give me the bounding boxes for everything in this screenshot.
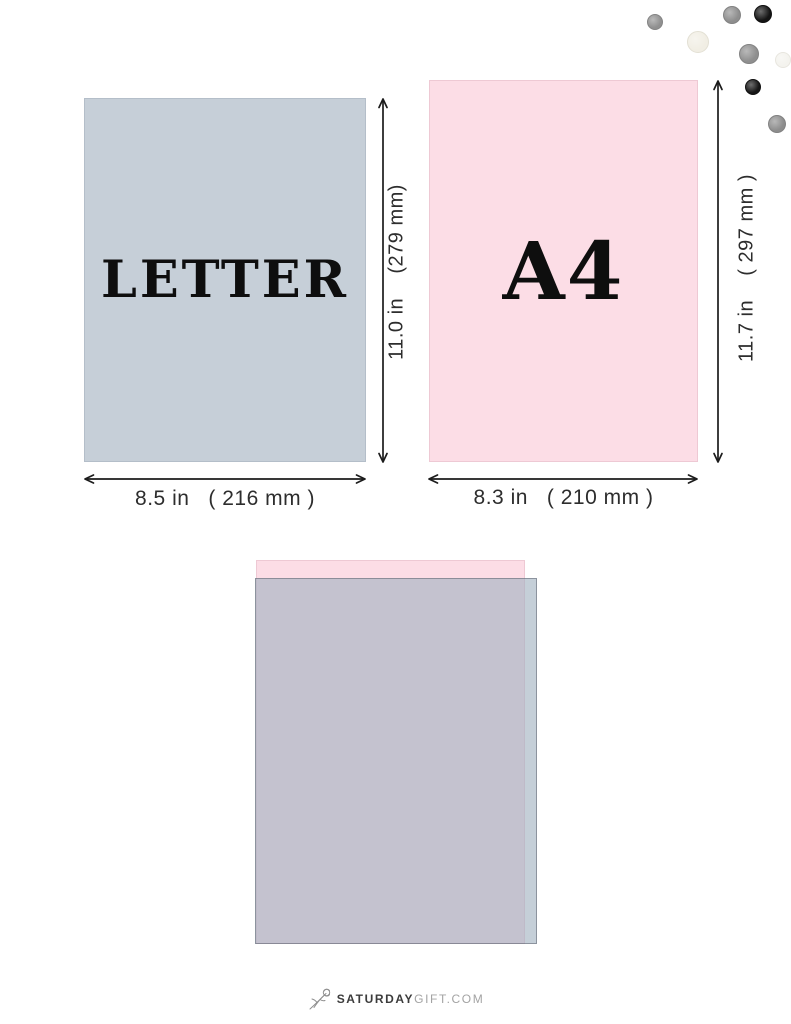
confetti-dot-gray <box>647 14 663 30</box>
confetti-dot-black <box>745 79 761 95</box>
letter-height-label: 11.0 in (279 mm) <box>386 184 409 360</box>
a4-sheet-title: A4 <box>503 231 625 311</box>
confetti-dot-gray <box>768 115 786 133</box>
overlay-letter-sheet <box>255 578 537 944</box>
brand-text-light: GIFT.COM <box>414 992 484 1006</box>
a4-height-arrow-icon <box>710 79 726 464</box>
letter-sheet-title: LETTER <box>101 255 349 306</box>
a4-width-label: 8.3 in ( 210 mm ) <box>429 486 698 510</box>
confetti-dot-gray <box>723 6 741 24</box>
confetti-dot-white <box>775 52 791 68</box>
a4-width-arrow-icon <box>427 471 699 487</box>
confetti-dot-gray <box>739 44 759 64</box>
letter-width-label: 8.5 in ( 216 mm ) <box>84 487 366 511</box>
confetti-dot-cream <box>687 31 709 53</box>
confetti-dot-black <box>754 5 772 23</box>
brand-text-bold: SATURDAY <box>337 992 414 1006</box>
a4-height-label: 11.7 in ( 297 mm ) <box>736 174 759 362</box>
brand-text: SATURDAYGIFT.COM <box>337 992 485 1006</box>
brand-footer: SATURDAYGIFT.COM <box>0 986 791 1012</box>
flower-icon <box>307 986 333 1012</box>
page-canvas: LETTER A4 8.5 <box>0 0 791 1024</box>
a4-sheet: A4 <box>429 80 698 462</box>
letter-sheet: LETTER <box>84 98 366 462</box>
letter-width-arrow-icon <box>83 471 367 487</box>
